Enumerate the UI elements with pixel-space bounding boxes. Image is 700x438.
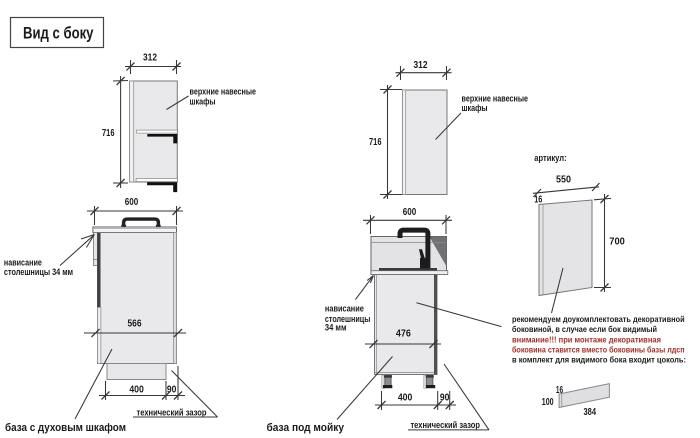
- svg-text:боковиной, в случае если бок в: боковиной, в случае если бок видимый: [512, 324, 657, 334]
- svg-text:шкафы: шкафы: [190, 96, 216, 106]
- svg-text:600: 600: [403, 207, 417, 218]
- svg-text:400: 400: [398, 392, 413, 403]
- svg-text:столешницы 34 мм: столешницы 34 мм: [4, 267, 73, 277]
- svg-text:база с духовым шкафом: база с духовым шкафом: [5, 422, 126, 434]
- svg-text:Вид с боку: Вид с боку: [23, 23, 94, 42]
- svg-text:384: 384: [584, 407, 597, 418]
- svg-text:476: 476: [396, 328, 411, 339]
- svg-text:база под мойку: база под мойку: [267, 422, 345, 434]
- svg-text:716: 716: [369, 137, 382, 148]
- svg-text:верхние навесные: верхние навесные: [462, 94, 529, 104]
- svg-text:400: 400: [129, 384, 144, 395]
- svg-text:16: 16: [556, 385, 563, 396]
- svg-text:550: 550: [556, 175, 571, 186]
- svg-text:внимание!!! при монтаже декора: внимание!!! при монтаже декоративная: [512, 334, 661, 344]
- svg-text:100: 100: [542, 397, 554, 408]
- svg-text:нависание: нависание: [325, 304, 364, 314]
- svg-text:716: 716: [102, 128, 115, 139]
- svg-text:верхние навесные: верхние навесные: [190, 87, 257, 97]
- svg-text:в комплект для видимого бока в: в комплект для видимого бока входит цоко…: [512, 355, 686, 365]
- svg-text:700: 700: [609, 236, 625, 247]
- svg-text:шкафы: шкафы: [462, 103, 488, 113]
- svg-text:нависание: нависание: [4, 257, 42, 267]
- svg-text:боковина ставится вместо боков: боковина ставится вместо боковины базы л…: [512, 345, 685, 355]
- svg-text:312: 312: [143, 53, 157, 64]
- svg-text:566: 566: [128, 319, 142, 330]
- svg-text:технический зазор: технический зазор: [411, 420, 481, 430]
- svg-text:рекомендуем доукомплектовать д: рекомендуем доукомплектовать декоративно…: [512, 314, 685, 324]
- svg-text:артикул:: артикул:: [534, 153, 566, 163]
- svg-text:34 мм: 34 мм: [325, 323, 347, 333]
- svg-text:технический зазор: технический зазор: [137, 407, 207, 417]
- svg-text:600: 600: [125, 197, 139, 208]
- svg-text:312: 312: [414, 60, 428, 71]
